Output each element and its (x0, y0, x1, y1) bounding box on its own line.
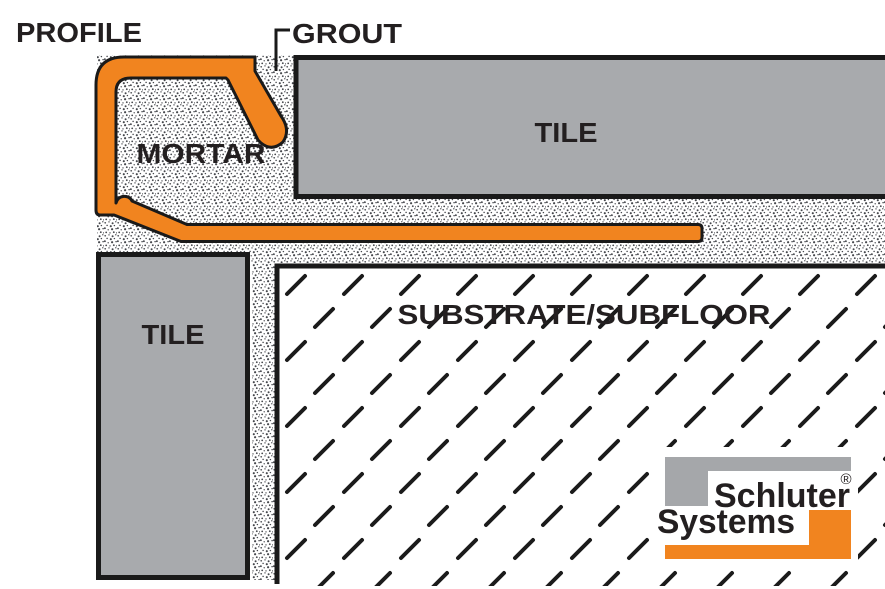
substrate-label: SUBSTRATE/SUBFLOOR (398, 299, 771, 330)
mortar-strip-behind-left-tile-fill (252, 263, 277, 580)
profile-label: PROFILE (16, 17, 142, 48)
diagram-canvas: PROFILE GROUT MORTAR TILE TILE SUBSTRATE… (0, 0, 885, 589)
tile-edge-profile-cross-section: PROFILE GROUT MORTAR TILE TILE SUBSTRATE… (0, 0, 885, 589)
tile-left-label: TILE (142, 319, 205, 350)
tile-left-rect (99, 255, 248, 578)
schluter-systems-logo: Schluter ® Systems (654, 447, 858, 566)
grout-label: GROUT (292, 18, 402, 49)
mortar-label: MORTAR (137, 138, 266, 169)
tile-top-label: TILE (535, 117, 598, 148)
logo-brand-line2: Systems (657, 503, 795, 541)
registered-trademark-icon: ® (840, 471, 851, 488)
